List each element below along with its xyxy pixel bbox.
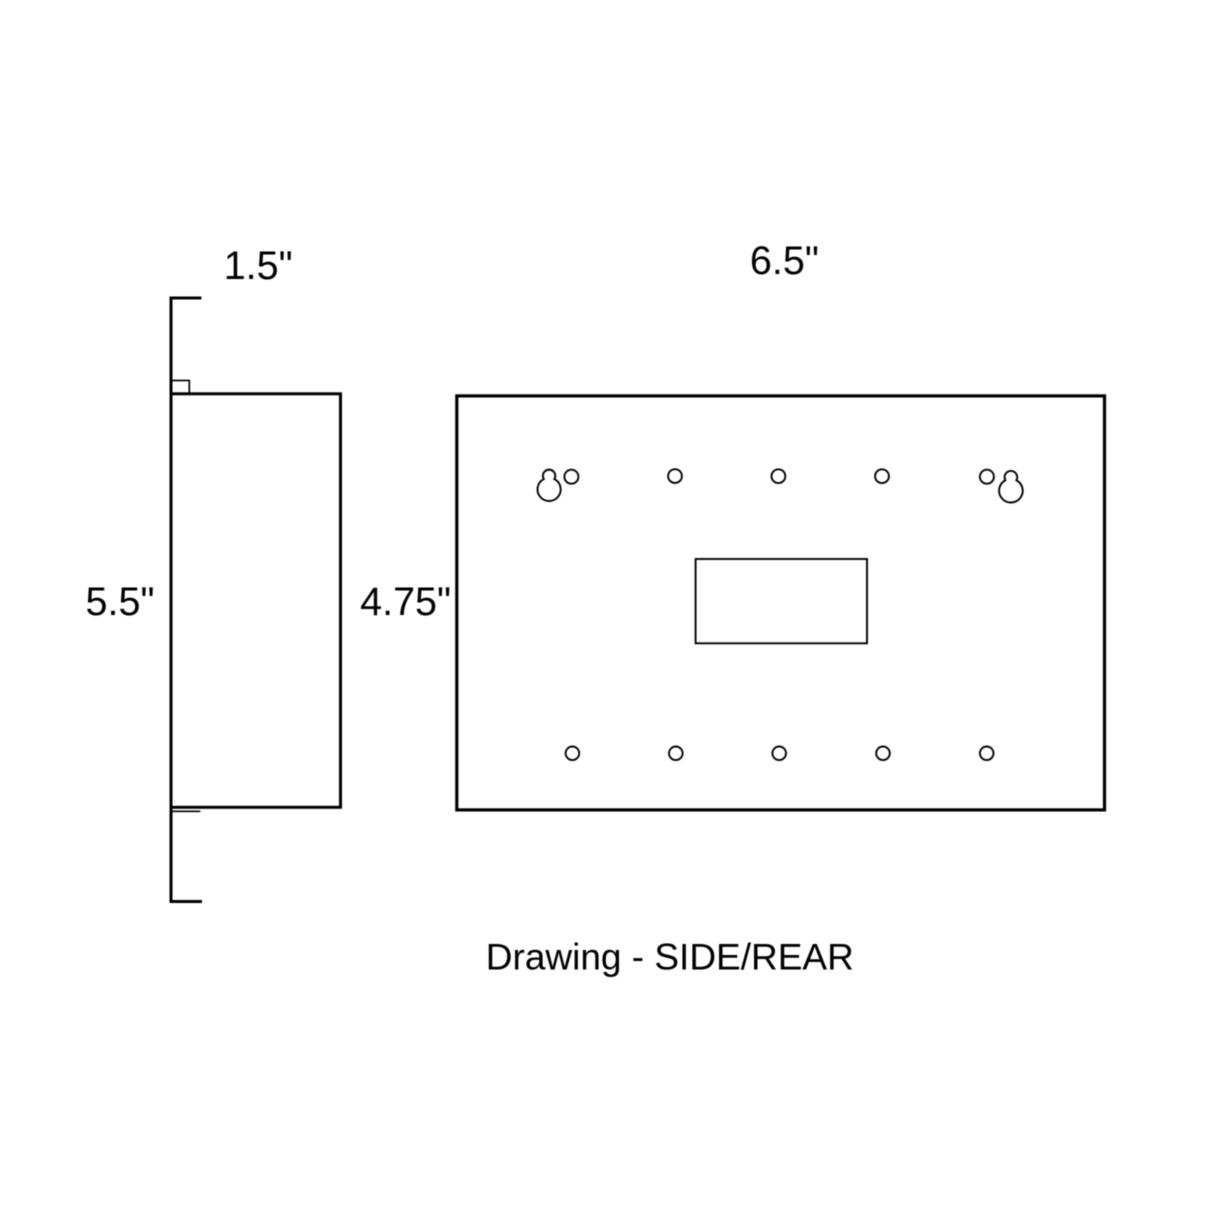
svg-text:Drawing - SIDE/REAR: Drawing - SIDE/REAR bbox=[486, 937, 854, 978]
svg-text:5.5": 5.5" bbox=[86, 580, 155, 624]
svg-text:6.5": 6.5" bbox=[750, 239, 819, 283]
svg-text:1.5": 1.5" bbox=[224, 244, 293, 288]
svg-text:4.75": 4.75" bbox=[360, 580, 451, 624]
